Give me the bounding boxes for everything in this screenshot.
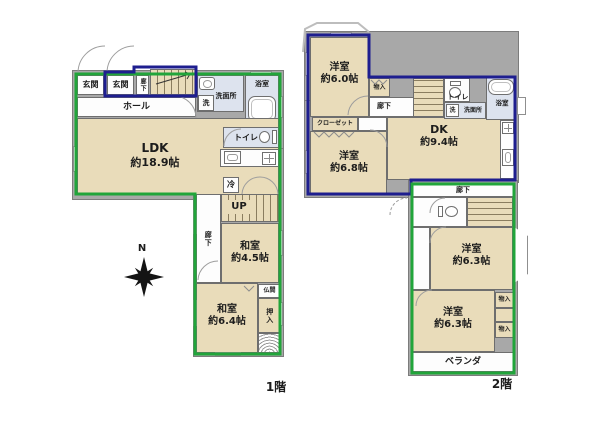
kitchen-sink-icon-2f	[502, 149, 514, 166]
door-swing-arc	[78, 46, 105, 72]
window-mark	[250, 71, 272, 75]
stairs-1f-up	[221, 194, 279, 222]
room-butsuma	[258, 284, 281, 298]
bathtub-icon-2f	[488, 79, 514, 95]
stairs-2f-green	[467, 197, 513, 227]
room-corridor-2f-upper	[369, 97, 414, 117]
room-yoshitsu-60	[310, 37, 369, 117]
stove-icon-1f	[262, 152, 276, 165]
window-mark	[193, 210, 197, 234]
toilet-icon-1f	[259, 129, 277, 145]
floor-plan: 玄関 玄関 廊下 ホール 洗面所 洗 浴室 LDK 約18.9帖 トイレ 冷 U…	[0, 0, 600, 424]
window-mark	[215, 352, 241, 356]
bay-window-2f	[514, 227, 528, 283]
room-corridor-2f-lower	[412, 184, 514, 197]
washer-box-2f	[446, 104, 459, 117]
door-swing-arc-dashed	[390, 198, 407, 215]
compass-north-label: N	[134, 243, 150, 255]
room-oshiire	[258, 298, 281, 333]
window-mark	[330, 32, 352, 36]
window-mark	[305, 150, 309, 174]
room-yoshitsu-68	[310, 131, 387, 195]
room-corridor-1f	[196, 194, 221, 283]
toilet-icon-2f-green	[438, 205, 460, 218]
stairs-1f-entry	[150, 69, 196, 95]
room-dk	[387, 117, 516, 180]
room-yoshitsu-63-upper	[430, 227, 513, 290]
compass-rose-icon	[124, 257, 164, 297]
room-monoire-top-2f	[369, 78, 390, 97]
door-swing-arc	[107, 46, 134, 72]
room-monoire-b	[495, 322, 514, 338]
window-mark	[73, 146, 77, 172]
room-entry-corridor	[136, 75, 149, 95]
floor1-label: 1階	[258, 379, 294, 395]
floor2-label: 2階	[484, 376, 520, 392]
kitchen-sink-icon-1f	[224, 151, 241, 164]
bath-window-bump-2f	[517, 97, 526, 115]
room-monoire-a	[495, 292, 514, 308]
room-closet-2f	[312, 117, 358, 131]
strip-2f-green	[412, 227, 430, 290]
room-washitsu-64	[196, 283, 258, 353]
room-hall	[77, 97, 196, 117]
toilet-icon-2f-navy	[448, 81, 463, 99]
window-mark	[305, 52, 309, 76]
room-genkan-right	[107, 75, 134, 95]
closet-mid-2f	[495, 308, 514, 322]
stairs-2f-navy	[413, 78, 444, 117]
washbasin-icon-1f	[199, 77, 215, 90]
window-mark	[279, 230, 283, 256]
window-mark	[279, 96, 283, 118]
itanoma-wood-floor	[258, 333, 281, 353]
window-mark	[279, 302, 283, 326]
room-veranda	[412, 352, 514, 372]
window-mark	[193, 300, 197, 326]
washer-box-1f	[198, 95, 214, 111]
stove-icon-2f	[502, 122, 514, 134]
fridge-box	[223, 177, 239, 193]
room-yoshitsu-63-lower	[412, 290, 495, 352]
room-washitsu-45	[221, 223, 279, 283]
room-corridor-2f-upper-b	[358, 117, 387, 131]
room-genkan-left	[77, 75, 104, 95]
